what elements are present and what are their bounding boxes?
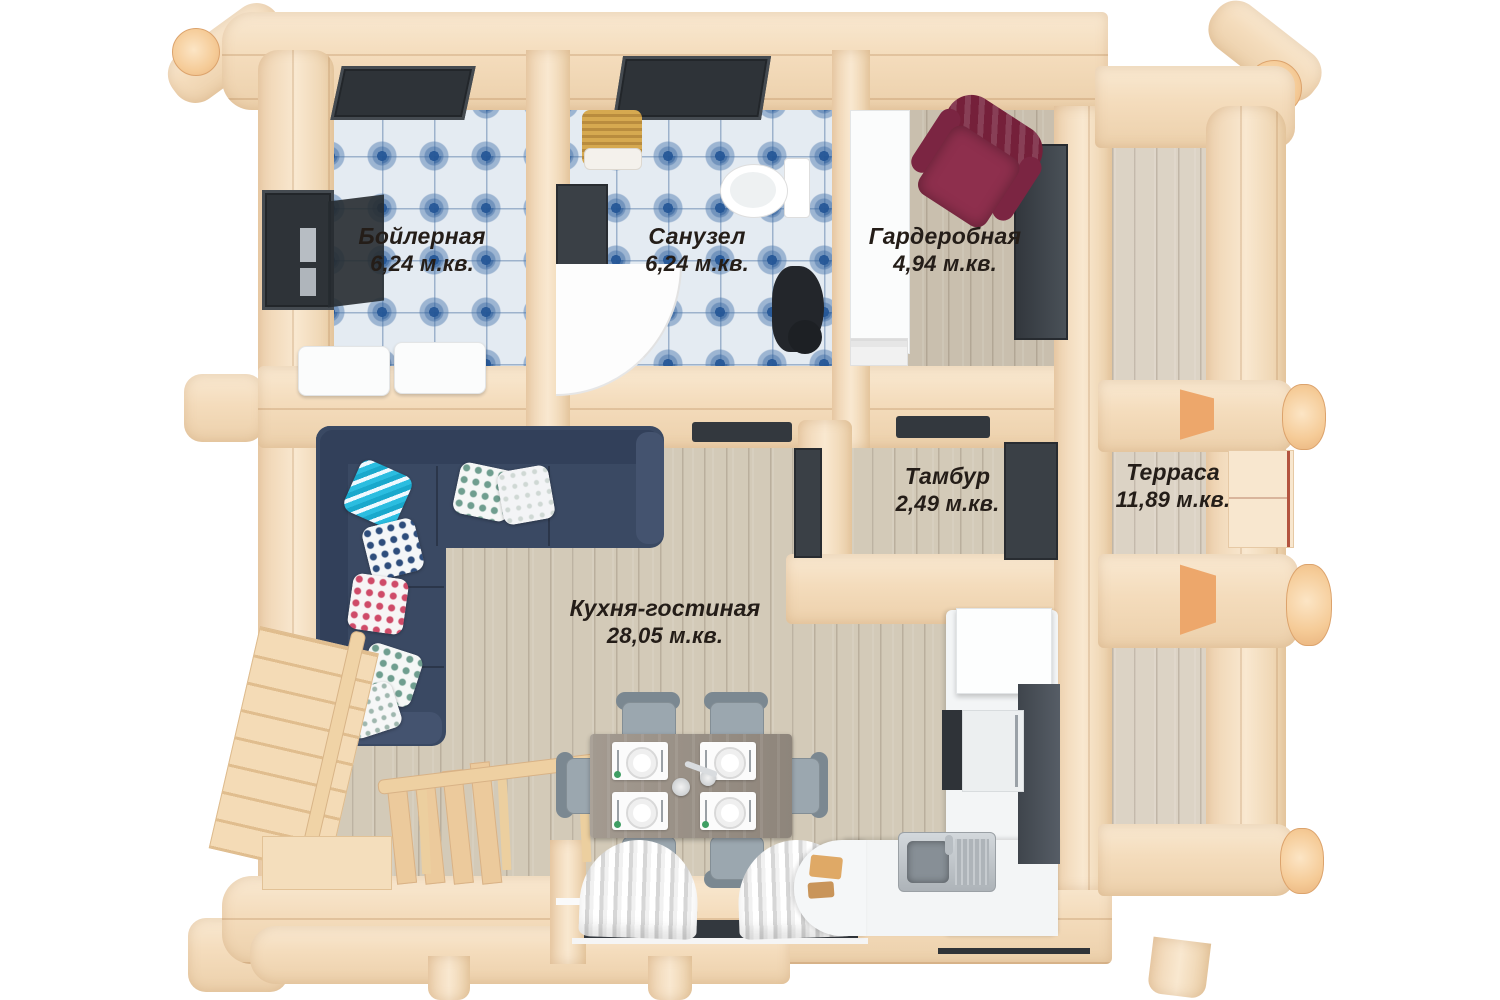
- boiler-appliance-1: [298, 346, 390, 396]
- bottom-stub-1: [428, 956, 470, 1000]
- napkin-ring: [614, 821, 621, 828]
- room-name: Тамбур: [850, 462, 1045, 490]
- sink-drainboard: [955, 839, 989, 885]
- placemat-4: [700, 792, 756, 830]
- napkin-ring: [614, 771, 621, 778]
- napkin-ring: [702, 821, 709, 828]
- room-label-kitchen-living: Кухня-гостиная 28,05 м.кв.: [540, 594, 790, 650]
- room-label-terrace: Терраса 11,89 м.кв.: [1068, 458, 1278, 514]
- kitchen-fridge: [956, 608, 1052, 694]
- vestibule-bench: [896, 416, 990, 438]
- log-end-left-middle: [184, 374, 264, 442]
- sink-bowl: [907, 841, 949, 883]
- vestibule-door-left: [794, 448, 822, 558]
- kitchen-oven: [962, 710, 1024, 792]
- placemat-1: [612, 742, 668, 780]
- kitchen-cooktop: [942, 710, 962, 790]
- terrace-bottom-log: [1098, 824, 1294, 896]
- placemat-3: [612, 792, 668, 830]
- log-cut-right-1: [1282, 384, 1326, 450]
- kitchen-tall-cabinet: [1018, 684, 1060, 864]
- stairs-landing: [262, 836, 392, 890]
- plate: [714, 797, 746, 829]
- floor-plan-canvas: Бойлерная 6,24 м.кв. Санузел 6,24 м.кв. …: [0, 0, 1500, 1000]
- cutlery: [661, 800, 663, 822]
- boiler-top-window: [330, 66, 475, 120]
- sofa-arm-right: [636, 432, 664, 544]
- cutlery: [617, 800, 619, 822]
- room-area: 6,24 м.кв.: [327, 250, 517, 278]
- bathroom-plant-pot: [788, 320, 822, 354]
- pillow-red-dots: [346, 572, 409, 635]
- laundry-basket-lid: [584, 148, 642, 170]
- wardrobe-linen-stack: [850, 338, 908, 366]
- room-name: Санузел: [602, 222, 792, 250]
- plate: [626, 797, 658, 829]
- room-name: Кухня-гостиная: [540, 594, 790, 622]
- boiler-window-pane: [300, 228, 316, 262]
- plate: [626, 747, 658, 779]
- cutting-board-1: [809, 854, 843, 879]
- room-name: Гардеробная: [840, 222, 1050, 250]
- room-label-wardrobe: Гардеробная 4,94 м.кв.: [840, 222, 1050, 278]
- cutlery: [661, 750, 663, 772]
- sofa-seam-1: [436, 466, 438, 546]
- room-label-vestibule: Тамбур 2,49 м.кв.: [850, 462, 1045, 518]
- bottom-stub-3: [1147, 937, 1211, 1000]
- room-label-bathroom: Санузел 6,24 м.кв.: [602, 222, 792, 278]
- dining-window-sill-line: [572, 938, 868, 944]
- sofa-back-top: [322, 430, 658, 464]
- cutlery: [617, 750, 619, 772]
- kitchen-bottom-line: [938, 948, 1090, 954]
- sink-faucet: [945, 835, 953, 855]
- cutlery: [749, 800, 751, 822]
- pillow-white: [496, 464, 557, 526]
- log-cut-right-3: [1280, 828, 1324, 894]
- terrace-table-edge: [1287, 451, 1290, 547]
- room-label-boiler: Бойлерная 6,24 м.кв.: [327, 222, 517, 278]
- room-name: Терраса: [1068, 458, 1278, 486]
- cutlery: [749, 750, 751, 772]
- terrace-floor: [1112, 146, 1210, 888]
- room-area: 28,05 м.кв.: [540, 622, 790, 650]
- room-area: 6,24 м.кв.: [602, 250, 792, 278]
- bottom-stub-2: [648, 956, 692, 1000]
- coat-rack: [692, 422, 792, 442]
- log-cut-top-left: [172, 28, 220, 76]
- room-area: 11,89 м.кв.: [1068, 486, 1278, 514]
- table-centerpiece-1: [672, 778, 690, 796]
- room-area: 4,94 м.кв.: [840, 250, 1050, 278]
- cutting-board-2: [807, 881, 834, 899]
- cutlery: [705, 800, 707, 822]
- plate: [714, 747, 746, 779]
- log-cut-right-2: [1286, 564, 1332, 646]
- room-area: 2,49 м.кв.: [850, 490, 1045, 518]
- room-name: Бойлерная: [327, 222, 517, 250]
- oven-handle: [1015, 715, 1018, 787]
- kitchen-sink: [898, 832, 996, 892]
- toilet-seat: [730, 172, 776, 208]
- boiler-appliance-2: [394, 342, 486, 394]
- boiler-left-window: [262, 190, 334, 310]
- boiler-window-pane-2: [300, 268, 316, 296]
